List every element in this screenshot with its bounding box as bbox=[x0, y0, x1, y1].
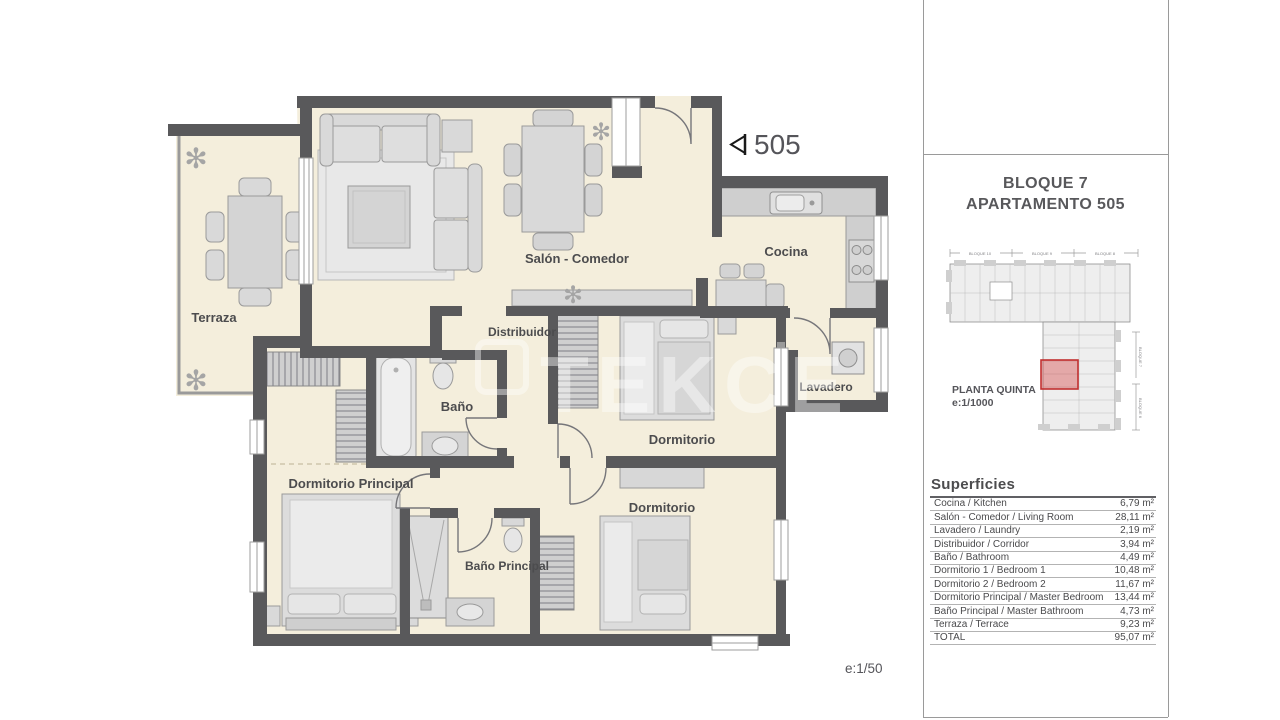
row-label: Salón - Comedor / Living Room bbox=[934, 512, 1074, 523]
site-plan-caption: PLANTA QUINTA e:1/1000 bbox=[952, 384, 1036, 410]
coffee-table bbox=[348, 186, 410, 248]
armchair-sofa-icon bbox=[434, 164, 482, 272]
surfaces-rows: Cocina / Kitchen 6,79 m² Salón - Comedor… bbox=[930, 498, 1156, 645]
room-label-lavadero: Lavadero bbox=[799, 380, 852, 394]
site-scale-label: e:1/1000 bbox=[952, 397, 1036, 410]
plant-icon: ✻ bbox=[563, 282, 583, 309]
row-label: Terraza / Terrace bbox=[934, 619, 1009, 630]
floor-plan-svg: ✻ ✻ ✻ ✻ bbox=[0, 0, 920, 720]
row-label: Lavadero / Laundry bbox=[934, 525, 1020, 536]
sofa-icon bbox=[320, 114, 440, 166]
nightstand bbox=[718, 316, 736, 334]
plant-icon: ✻ bbox=[184, 143, 207, 174]
sideboard bbox=[512, 290, 692, 306]
table-row: Dormitorio 1 / Bedroom 1 10,48 m² bbox=[930, 565, 1156, 578]
row-label: Dormitorio 1 / Bedroom 1 bbox=[934, 565, 1046, 576]
row-label: Dormitorio Principal / Master Bedroom bbox=[934, 592, 1104, 603]
row-label: Baño Principal / Master Bathroom bbox=[934, 606, 1084, 617]
plant-icon: ✻ bbox=[591, 119, 611, 146]
surfaces-table: Superficies Cocina / Kitchen 6,79 m² Sal… bbox=[930, 476, 1156, 645]
highlighted-unit bbox=[1041, 360, 1078, 389]
bathtub-icon bbox=[376, 352, 416, 462]
shower-icon bbox=[404, 516, 448, 618]
site-block-label: BLOQUE 6 bbox=[1138, 398, 1143, 419]
room-label-dormitorio2: Dormitorio bbox=[629, 500, 696, 515]
site-block-label: BLOQUE 8 bbox=[1095, 251, 1116, 256]
room-label-dormitorio1: Dormitorio bbox=[649, 432, 716, 447]
site-block-label: BLOQUE 7 bbox=[1138, 347, 1143, 368]
row-label: Distribuidor / Corridor bbox=[934, 539, 1029, 550]
row-value: 13,44 m² bbox=[1115, 592, 1154, 603]
room-label-bano: Baño bbox=[441, 399, 474, 414]
wardrobe-icon bbox=[538, 536, 574, 610]
row-label: Dormitorio 2 / Bedroom 2 bbox=[934, 579, 1046, 590]
row-value: 6,79 m² bbox=[1120, 498, 1154, 509]
floorplan-page: ✻ ✻ ✻ ✻ bbox=[0, 0, 1280, 720]
room-label-distribuidor: Distribuidor bbox=[488, 325, 556, 339]
block-title: BLOQUE 7 bbox=[923, 174, 1168, 195]
washbasin-icon bbox=[422, 432, 468, 460]
door-arrow-icon bbox=[731, 136, 745, 153]
room-label-dormitorio-principal: Dormitorio Principal bbox=[289, 476, 414, 491]
row-value: 28,11 m² bbox=[1115, 512, 1154, 523]
table-row: Lavadero / Laundry 2,19 m² bbox=[930, 525, 1156, 538]
table-row: Terraza / Terrace 9,23 m² bbox=[930, 619, 1156, 632]
sidebar-title: BLOQUE 7 APARTAMENTO 505 bbox=[923, 174, 1168, 216]
row-value: 2,19 m² bbox=[1120, 525, 1154, 536]
site-plan: BLOQUE 10 BLOQUE 9 BLOQUE 8 bbox=[938, 240, 1168, 460]
bed-icon bbox=[600, 516, 690, 630]
row-value: 9,23 m² bbox=[1120, 619, 1154, 630]
room-label-terraza: Terraza bbox=[191, 310, 237, 325]
side-table bbox=[442, 120, 472, 152]
table-row: Salón - Comedor / Living Room 28,11 m² bbox=[930, 511, 1156, 524]
row-value: 11,67 m² bbox=[1115, 579, 1154, 590]
row-label: Cocina / Kitchen bbox=[934, 498, 1007, 509]
sidebar-border-right bbox=[1168, 0, 1169, 717]
sidebar-border-left bbox=[923, 0, 924, 717]
row-value: 4,73 m² bbox=[1120, 606, 1154, 617]
entrance-marker: 505 bbox=[731, 129, 801, 160]
bed-icon bbox=[282, 494, 400, 630]
row-value: 10,48 m² bbox=[1115, 565, 1154, 576]
table-row: Baño Principal / Master Bathroom 4,73 m² bbox=[930, 605, 1156, 618]
surfaces-heading: Superficies bbox=[930, 476, 1156, 498]
row-label: TOTAL bbox=[934, 632, 965, 643]
table-row: Dormitorio Principal / Master Bedroom 13… bbox=[930, 592, 1156, 605]
washbasin-icon bbox=[446, 598, 494, 626]
site-block-label: BLOQUE 10 bbox=[969, 251, 992, 256]
apartment-title: APARTAMENTO 505 bbox=[923, 195, 1168, 216]
room-label-salon: Salón - Comedor bbox=[525, 251, 629, 266]
row-label: Baño / Bathroom bbox=[934, 552, 1009, 563]
table-row: Dormitorio 2 / Bedroom 2 11,67 m² bbox=[930, 578, 1156, 591]
table-row: TOTAL 95,07 m² bbox=[930, 632, 1156, 645]
row-value: 95,07 m² bbox=[1115, 632, 1154, 643]
washing-machine-icon bbox=[832, 342, 864, 374]
table-row: Cocina / Kitchen 6,79 m² bbox=[930, 498, 1156, 511]
plan-scale-label: e:1/50 bbox=[845, 661, 883, 676]
sidebar-divider bbox=[923, 154, 1168, 155]
floor-level-label: PLANTA QUINTA bbox=[952, 384, 1036, 397]
row-value: 4,49 m² bbox=[1120, 552, 1154, 563]
table-row: Baño / Bathroom 4,49 m² bbox=[930, 552, 1156, 565]
site-plan-svg: BLOQUE 10 BLOQUE 9 BLOQUE 8 bbox=[938, 240, 1168, 455]
wardrobe-icon bbox=[554, 314, 598, 408]
sidebar-border-bottom bbox=[923, 717, 1168, 718]
site-block-label: BLOQUE 9 bbox=[1032, 251, 1053, 256]
row-value: 3,94 m² bbox=[1120, 539, 1154, 550]
unit-number: 505 bbox=[754, 129, 801, 160]
toilet-icon bbox=[502, 518, 524, 552]
plant-icon: ✻ bbox=[184, 365, 207, 396]
room-label-bano-principal: Baño Principal bbox=[465, 559, 549, 573]
room-label-cocina: Cocina bbox=[764, 244, 808, 259]
bed-icon bbox=[620, 316, 714, 420]
table-row: Distribuidor / Corridor 3,94 m² bbox=[930, 538, 1156, 551]
